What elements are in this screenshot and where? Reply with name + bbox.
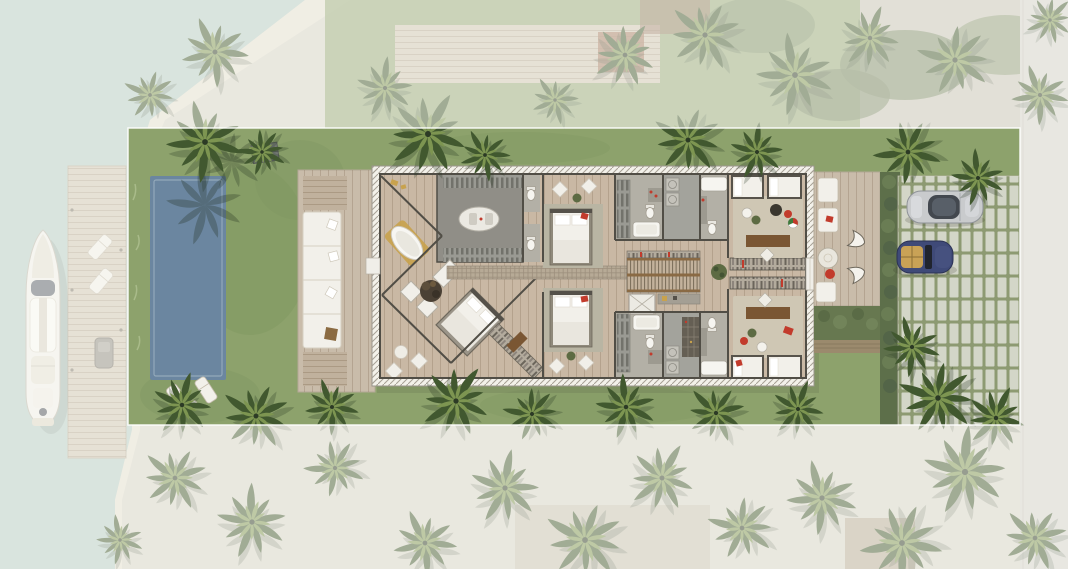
shower-closet	[617, 180, 630, 238]
east-deck	[814, 172, 880, 353]
deck-daybed	[303, 212, 341, 348]
car-windshield	[925, 245, 932, 269]
wardrobe-hatch	[443, 174, 523, 188]
west-entry-step	[366, 258, 380, 274]
staircase	[627, 251, 700, 292]
bathtub	[701, 177, 727, 191]
vanity	[648, 350, 662, 364]
hedge-strip	[880, 172, 900, 425]
kitchenette-counter	[658, 294, 700, 304]
red-cushion	[581, 295, 589, 302]
utility-north	[663, 174, 728, 240]
utility-south	[663, 312, 728, 378]
site-plan-canvas	[0, 0, 1068, 569]
bathroom-north-a	[615, 174, 663, 240]
red-floor-cushion	[825, 269, 835, 279]
deck-daybed	[816, 282, 836, 302]
kids-room-north	[731, 175, 803, 262]
wardrobe-hatch	[443, 248, 523, 262]
plant	[567, 352, 576, 361]
round-dining-table	[818, 248, 838, 268]
site-plan-rendering	[0, 0, 1068, 569]
plant	[573, 194, 582, 203]
potted-plant-large	[420, 280, 442, 302]
deck-daybed	[818, 178, 838, 202]
daybed-cushion-brown	[324, 327, 338, 341]
house-floorplan	[366, 166, 824, 386]
west-deck	[298, 170, 375, 392]
desk	[746, 235, 790, 247]
garden-steps	[814, 340, 880, 353]
desk	[746, 307, 790, 319]
round-pouf	[395, 346, 408, 359]
hall-plant	[711, 264, 727, 280]
bathroom-south-a	[615, 312, 663, 378]
toy	[784, 210, 792, 218]
kids-room-south	[731, 293, 803, 379]
blue-convertible-car	[893, 241, 957, 277]
bathtub	[701, 361, 727, 375]
beach-ball	[788, 218, 798, 228]
shower-closet	[617, 314, 630, 372]
beanbag	[770, 204, 782, 216]
toy	[740, 337, 748, 345]
